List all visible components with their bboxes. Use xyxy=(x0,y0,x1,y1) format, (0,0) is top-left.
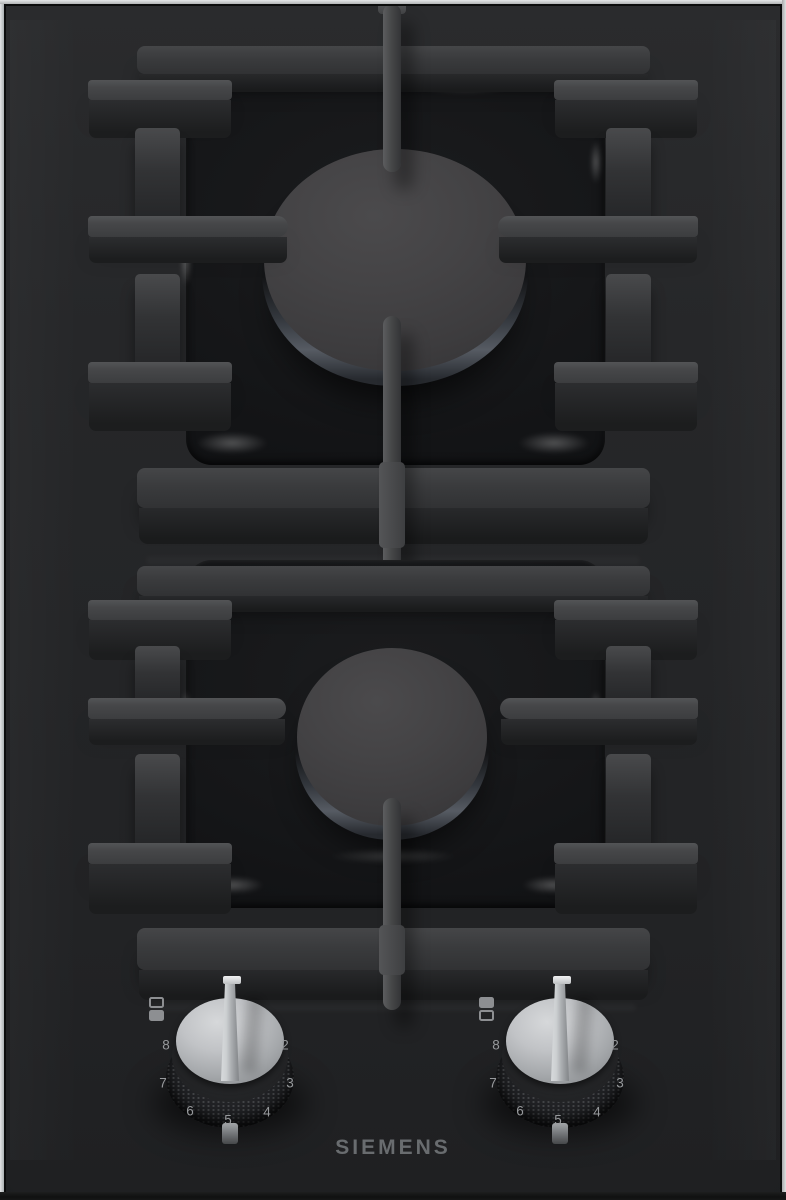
frame-edge-top xyxy=(0,0,786,4)
frame-edge-right xyxy=(782,0,786,1192)
frame-edge-bottom xyxy=(0,1192,786,1200)
frame-inner-line-left xyxy=(4,4,6,1192)
frame-inner-line-top xyxy=(4,4,782,6)
gas-hob: 8 7 6 5 4 3 2 8 7 6 5 4 3 2 SIEMENS xyxy=(0,0,786,1200)
frame-edge-left xyxy=(0,0,4,1192)
vignette-overlay xyxy=(0,0,786,1200)
